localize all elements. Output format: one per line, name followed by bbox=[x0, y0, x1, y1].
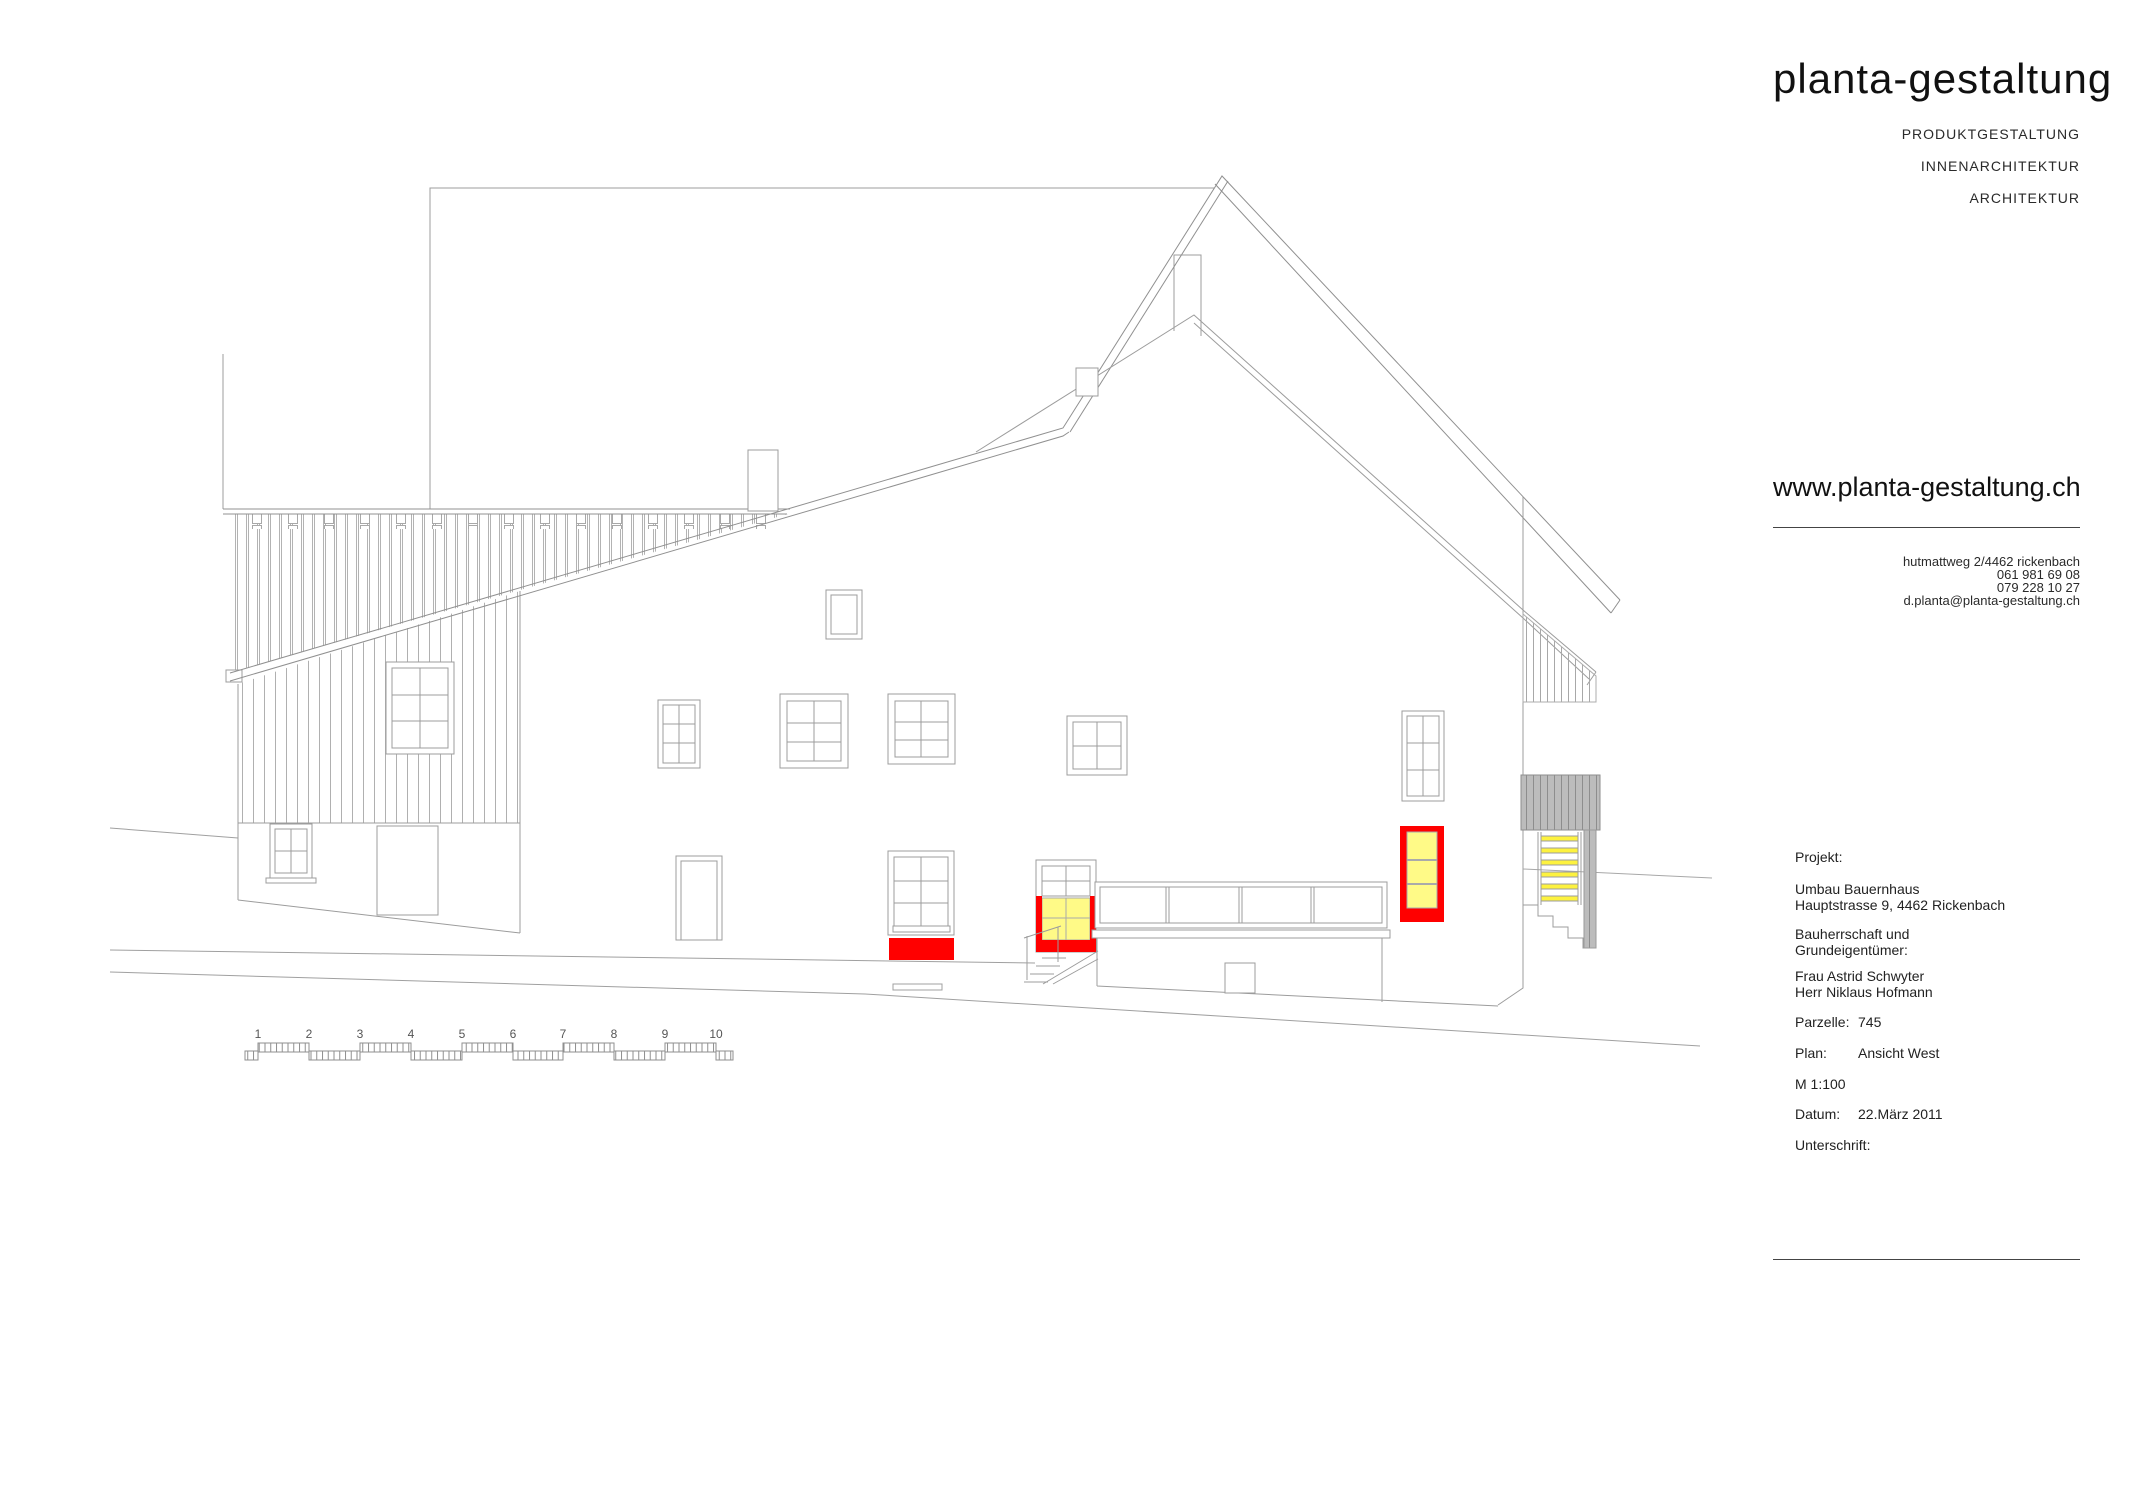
svg-text:1: 1 bbox=[255, 1027, 262, 1041]
service-innenarchitektur: INNENARCHITEKTUR bbox=[1650, 158, 2080, 174]
attic-window bbox=[826, 590, 862, 639]
highlighted-glass-door bbox=[1036, 860, 1096, 952]
stair-annex bbox=[1521, 614, 1712, 948]
batten-feet bbox=[240, 514, 780, 529]
svg-text:5: 5 bbox=[459, 1027, 466, 1041]
plan-sheet: 1 2 3 4 5 6 7 8 9 10 planta-gestaltung P… bbox=[0, 0, 2138, 1511]
svg-text:4: 4 bbox=[408, 1027, 415, 1041]
gable-vent-window bbox=[1076, 368, 1098, 396]
street-curb-step bbox=[893, 984, 942, 990]
project-label: Projekt: bbox=[1795, 849, 1842, 865]
email: d.planta@planta-gestaltung.ch bbox=[1650, 594, 2080, 607]
svg-text:6: 6 bbox=[510, 1027, 517, 1041]
scale-bar: 1 2 3 4 5 6 7 8 9 10 bbox=[245, 1027, 733, 1060]
svg-text:9: 9 bbox=[662, 1027, 669, 1041]
client-label-1: Bauherrschaft und bbox=[1795, 926, 1909, 942]
gray-board-block bbox=[1521, 775, 1600, 830]
window-3 bbox=[888, 694, 955, 764]
window-1 bbox=[658, 700, 700, 768]
plan-value: Ansicht West bbox=[1858, 1045, 1939, 1061]
firm-logo: planta-gestaltung bbox=[1773, 55, 2108, 103]
scale-bar-labels: 1 2 3 4 5 6 7 8 9 10 bbox=[255, 1027, 723, 1041]
yellow-ladder bbox=[1538, 832, 1581, 905]
yellow-highlight-panes bbox=[1407, 832, 1437, 908]
stair-annex-slats bbox=[1523, 614, 1596, 702]
service-architektur: ARCHITEKTUR bbox=[1650, 190, 2080, 206]
project-name: Umbau Bauernhaus bbox=[1795, 881, 1920, 897]
divider-line bbox=[1773, 527, 2080, 528]
annex-window bbox=[386, 662, 454, 754]
gray-corner-post bbox=[1584, 830, 1596, 948]
entrance-door bbox=[676, 856, 722, 940]
svg-text:2: 2 bbox=[306, 1027, 313, 1041]
window-4 bbox=[1067, 716, 1127, 775]
inner-gable bbox=[976, 315, 1596, 685]
veranda-basement-window bbox=[1225, 963, 1255, 993]
datum-label: Datum: bbox=[1795, 1106, 1840, 1122]
svg-text:7: 7 bbox=[560, 1027, 567, 1041]
scale-value: M 1:100 bbox=[1795, 1076, 1846, 1092]
client-name-1: Frau Astrid Schwyter bbox=[1795, 968, 1924, 984]
window-2 bbox=[780, 694, 848, 768]
svg-text:8: 8 bbox=[611, 1027, 618, 1041]
red-highlight-sill bbox=[889, 938, 954, 960]
annex-basement-window bbox=[266, 824, 316, 883]
left-chimney bbox=[748, 450, 778, 511]
client-label-2: Grundeigentümer: bbox=[1795, 942, 1908, 958]
signature-line bbox=[1773, 1259, 2080, 1260]
main-facade-outline bbox=[1498, 497, 1523, 1005]
elevation-drawing: 1 2 3 4 5 6 7 8 9 10 bbox=[0, 0, 2138, 1511]
svg-text:10: 10 bbox=[709, 1027, 723, 1041]
window-row-upper bbox=[658, 694, 1444, 801]
window-5 bbox=[1402, 711, 1444, 801]
parzelle-value: 745 bbox=[1858, 1014, 1881, 1030]
unterschrift-label: Unterschrift: bbox=[1795, 1137, 1870, 1153]
background-building bbox=[223, 188, 1214, 509]
website-url: www.planta-gestaltung.ch bbox=[1773, 472, 2108, 503]
window-with-red-infill bbox=[888, 851, 954, 960]
svg-text:3: 3 bbox=[357, 1027, 364, 1041]
ridge-chimney bbox=[1174, 255, 1201, 336]
annex-basement-door bbox=[377, 826, 438, 915]
datum-value: 22.März 2011 bbox=[1858, 1106, 1943, 1122]
project-address: Hauptstrasse 9, 4462 Rickenbach bbox=[1795, 897, 2005, 913]
plan-label: Plan: bbox=[1795, 1045, 1827, 1061]
eaves-band bbox=[223, 509, 790, 514]
service-produktgestaltung: PRODUKTGESTALTUNG bbox=[1650, 126, 2080, 142]
red-highlight-window bbox=[1400, 826, 1444, 922]
client-name-2: Herr Niklaus Hofmann bbox=[1795, 984, 1933, 1000]
parzelle-label: Parzelle: bbox=[1795, 1014, 1849, 1030]
